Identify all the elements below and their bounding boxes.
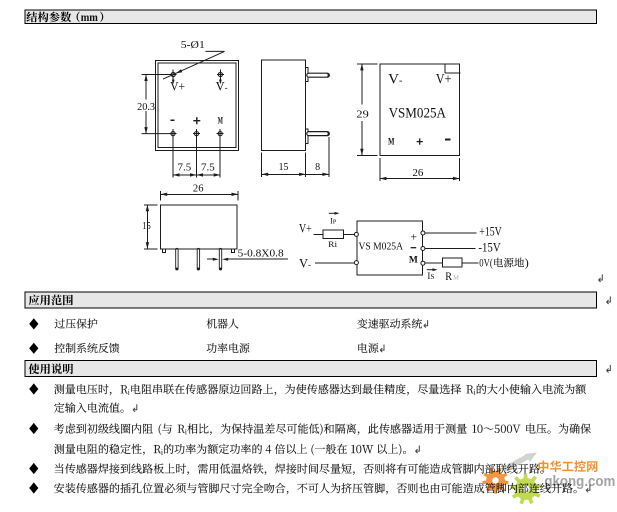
svg-text:V-: V- [216, 80, 228, 94]
svg-text:): ) [525, 256, 529, 270]
svg-text:VS M025A: VS M025A [359, 241, 404, 252]
svg-text:IS: IS [427, 271, 434, 281]
svg-text:20.3: 20.3 [137, 101, 155, 113]
svg-text:mm: mm [81, 10, 98, 24]
svg-text:29: 29 [356, 109, 369, 121]
svg-text:5-0.8X0.8: 5-0.8X0.8 [238, 248, 284, 259]
svg-text:7.5: 7.5 [201, 163, 215, 174]
svg-text:gkong.com: gkong.com [544, 473, 615, 490]
svg-text:15: 15 [279, 162, 289, 173]
svg-text:-15V: -15V [478, 239, 501, 254]
svg-text:R: R [445, 269, 452, 283]
svg-text:V+: V+ [170, 80, 185, 94]
svg-text:8: 8 [315, 162, 320, 173]
svg-text:+15V: +15V [479, 224, 502, 239]
svg-text:V+: V+ [299, 221, 312, 235]
svg-text:26: 26 [193, 183, 204, 195]
svg-text:M: M [409, 256, 418, 266]
svg-text:M: M [453, 275, 459, 282]
svg-text:V-: V- [299, 256, 311, 270]
svg-text:V+: V+ [436, 71, 452, 87]
svg-text:15: 15 [142, 221, 151, 232]
svg-text:VSM025A: VSM025A [389, 106, 447, 122]
svg-text:Ri: Ri [328, 239, 338, 249]
svg-text:7.5: 7.5 [178, 163, 192, 174]
svg-text:M: M [388, 137, 394, 148]
svg-text:0V(: 0V( [479, 256, 492, 270]
svg-text:+: + [410, 231, 417, 243]
svg-text:5-Ø1: 5-Ø1 [181, 39, 205, 51]
svg-text:26: 26 [412, 167, 423, 179]
svg-text:M: M [218, 116, 223, 126]
svg-text:IP: IP [330, 216, 337, 225]
svg-text:V-: V- [388, 71, 402, 87]
